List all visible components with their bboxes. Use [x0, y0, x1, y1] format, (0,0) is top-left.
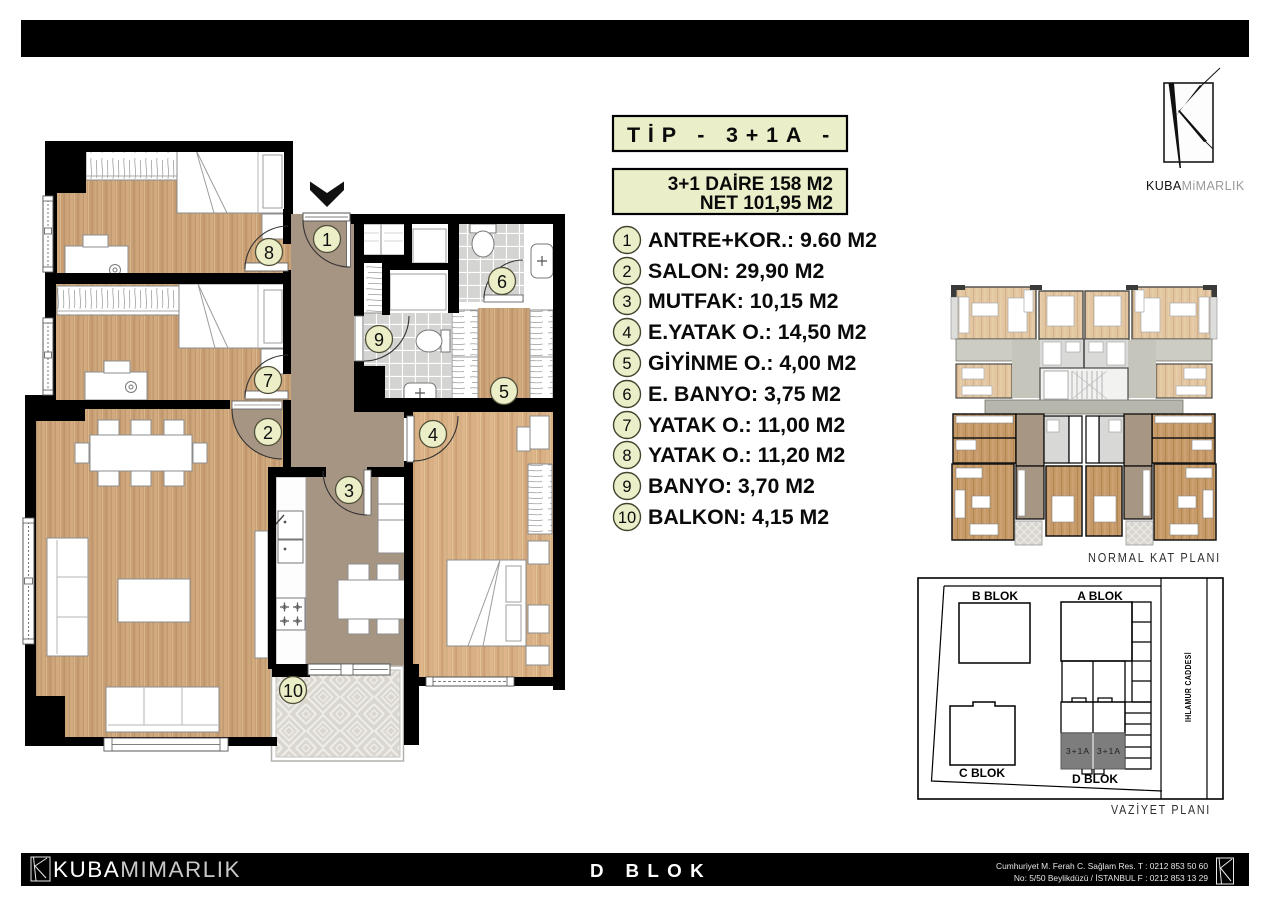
svg-text:IHLAMUR CADDESİ: IHLAMUR CADDESİ	[1184, 652, 1193, 722]
svg-text:NET 101,95 M2: NET 101,95 M2	[700, 193, 833, 214]
svg-text:9: 9	[374, 330, 384, 350]
svg-text:5: 5	[499, 382, 509, 402]
svg-text:E.YATAK O.: 14,50 M2: E.YATAK O.: 14,50 M2	[648, 320, 867, 344]
svg-text:B BLOK: B BLOK	[972, 589, 1018, 603]
svg-text:9: 9	[622, 478, 631, 496]
svg-text:10: 10	[283, 681, 303, 701]
svg-text:ANTRE+KOR.: 9.60 M2: ANTRE+KOR.: 9.60 M2	[648, 228, 877, 252]
svg-text:TİP - 3+1A -: TİP - 3+1A -	[627, 123, 837, 147]
svg-text:D BLOK: D BLOK	[590, 861, 712, 881]
svg-text:YATAK O.: 11,00 M2: YATAK O.: 11,00 M2	[648, 413, 845, 437]
svg-text:8: 8	[622, 447, 631, 465]
svg-text:5: 5	[622, 355, 631, 373]
svg-text:8: 8	[264, 243, 274, 263]
svg-text:Cumhuriyet M. Ferah C. Sağlam: Cumhuriyet M. Ferah C. Sağlam Res. T : 0…	[996, 861, 1208, 871]
svg-text:1: 1	[622, 232, 631, 250]
svg-text:BANYO: 3,70 M2: BANYO: 3,70 M2	[648, 474, 815, 498]
svg-text:7: 7	[263, 371, 273, 391]
svg-text:3+1 DAİRE 158 M2: 3+1 DAİRE 158 M2	[668, 174, 833, 195]
svg-text:1: 1	[322, 230, 332, 250]
svg-text:7: 7	[622, 417, 631, 435]
svg-text:A BLOK: A BLOK	[1077, 589, 1123, 603]
svg-text:E. BANYO: 3,75 M2: E. BANYO: 3,75 M2	[648, 382, 841, 406]
svg-text:BALKON: 4,15 M2: BALKON: 4,15 M2	[648, 505, 829, 529]
svg-text:3+1A: 3+1A	[1066, 746, 1090, 756]
svg-text:NORMAL KAT PLANI: NORMAL KAT PLANI	[1088, 551, 1221, 565]
svg-text:No: 5/50 Beylikdüzü / İSTANBU: No: 5/50 Beylikdüzü / İSTANBUL F : 0212 …	[1014, 873, 1208, 883]
svg-text:C BLOK: C BLOK	[959, 766, 1005, 780]
svg-text:2: 2	[622, 263, 631, 281]
svg-text:SALON: 29,90 M2: SALON: 29,90 M2	[648, 259, 824, 283]
svg-text:3: 3	[622, 293, 631, 311]
svg-text:YATAK O.: 11,20 M2: YATAK O.: 11,20 M2	[648, 443, 845, 467]
svg-text:D BLOK: D BLOK	[1072, 772, 1118, 786]
svg-text:KUBAMIMARLIK: KUBAMIMARLIK	[53, 857, 241, 882]
svg-text:GİYİNME O.: 4,00 M2: GİYİNME O.: 4,00 M2	[648, 351, 856, 375]
svg-text:VAZİYET PLANI: VAZİYET PLANI	[1111, 803, 1211, 817]
svg-text:MUTFAK: 10,15 M2: MUTFAK: 10,15 M2	[648, 289, 839, 313]
svg-text:4: 4	[622, 324, 631, 342]
svg-text:6: 6	[622, 386, 631, 404]
svg-text:3: 3	[344, 481, 354, 501]
svg-text:10: 10	[618, 509, 636, 527]
svg-text:3+1A: 3+1A	[1097, 746, 1121, 756]
svg-text:4: 4	[428, 425, 438, 445]
svg-text:6: 6	[497, 272, 507, 292]
svg-text:2: 2	[263, 423, 273, 443]
svg-text:KUBAMiMARLIK: KUBAMiMARLIK	[1146, 179, 1245, 193]
